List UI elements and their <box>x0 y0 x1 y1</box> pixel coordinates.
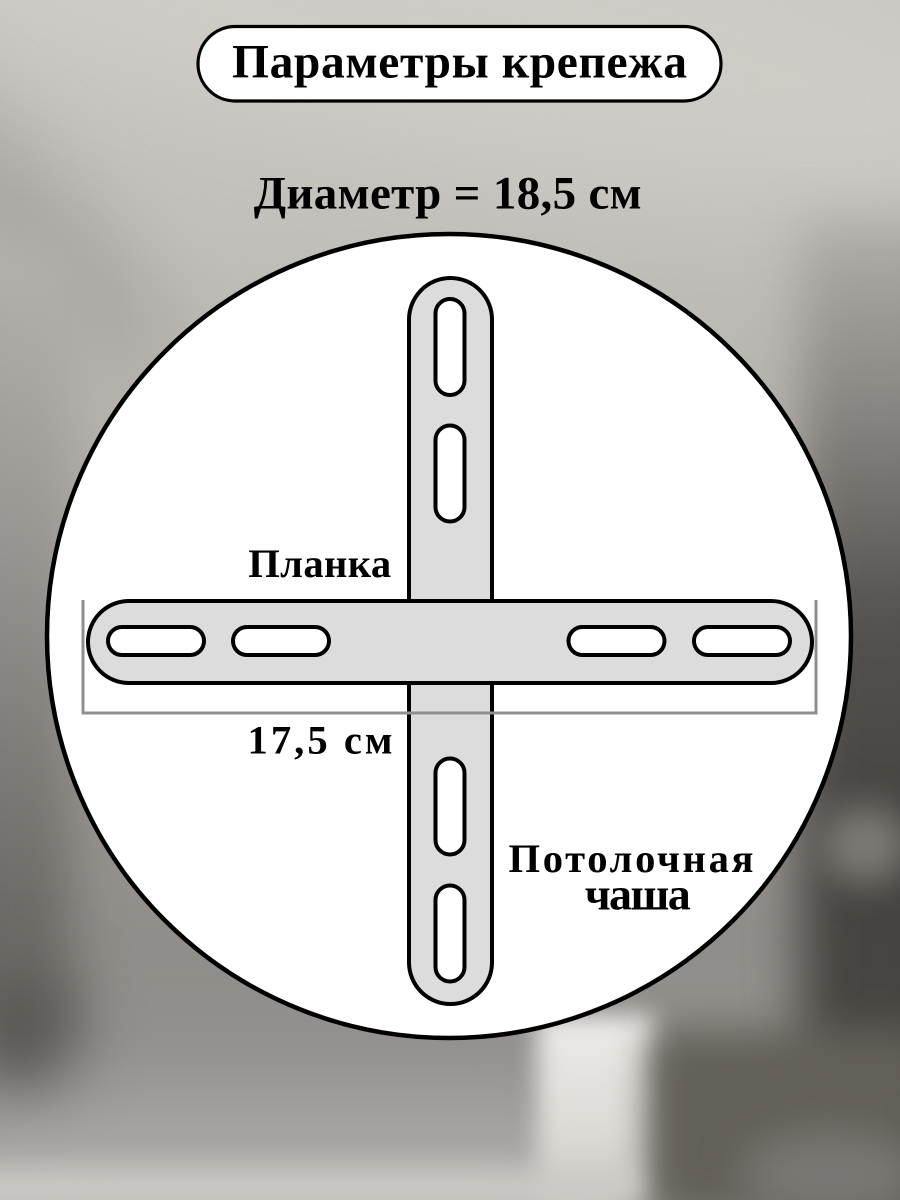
svg-text:чаша: чаша <box>585 869 691 920</box>
svg-text:Параметры крепежа: Параметры крепежа <box>232 36 687 88</box>
svg-text:Диаметр = 18,5 см: Диаметр = 18,5 см <box>254 167 642 219</box>
svg-text:Планка: Планка <box>248 541 391 586</box>
